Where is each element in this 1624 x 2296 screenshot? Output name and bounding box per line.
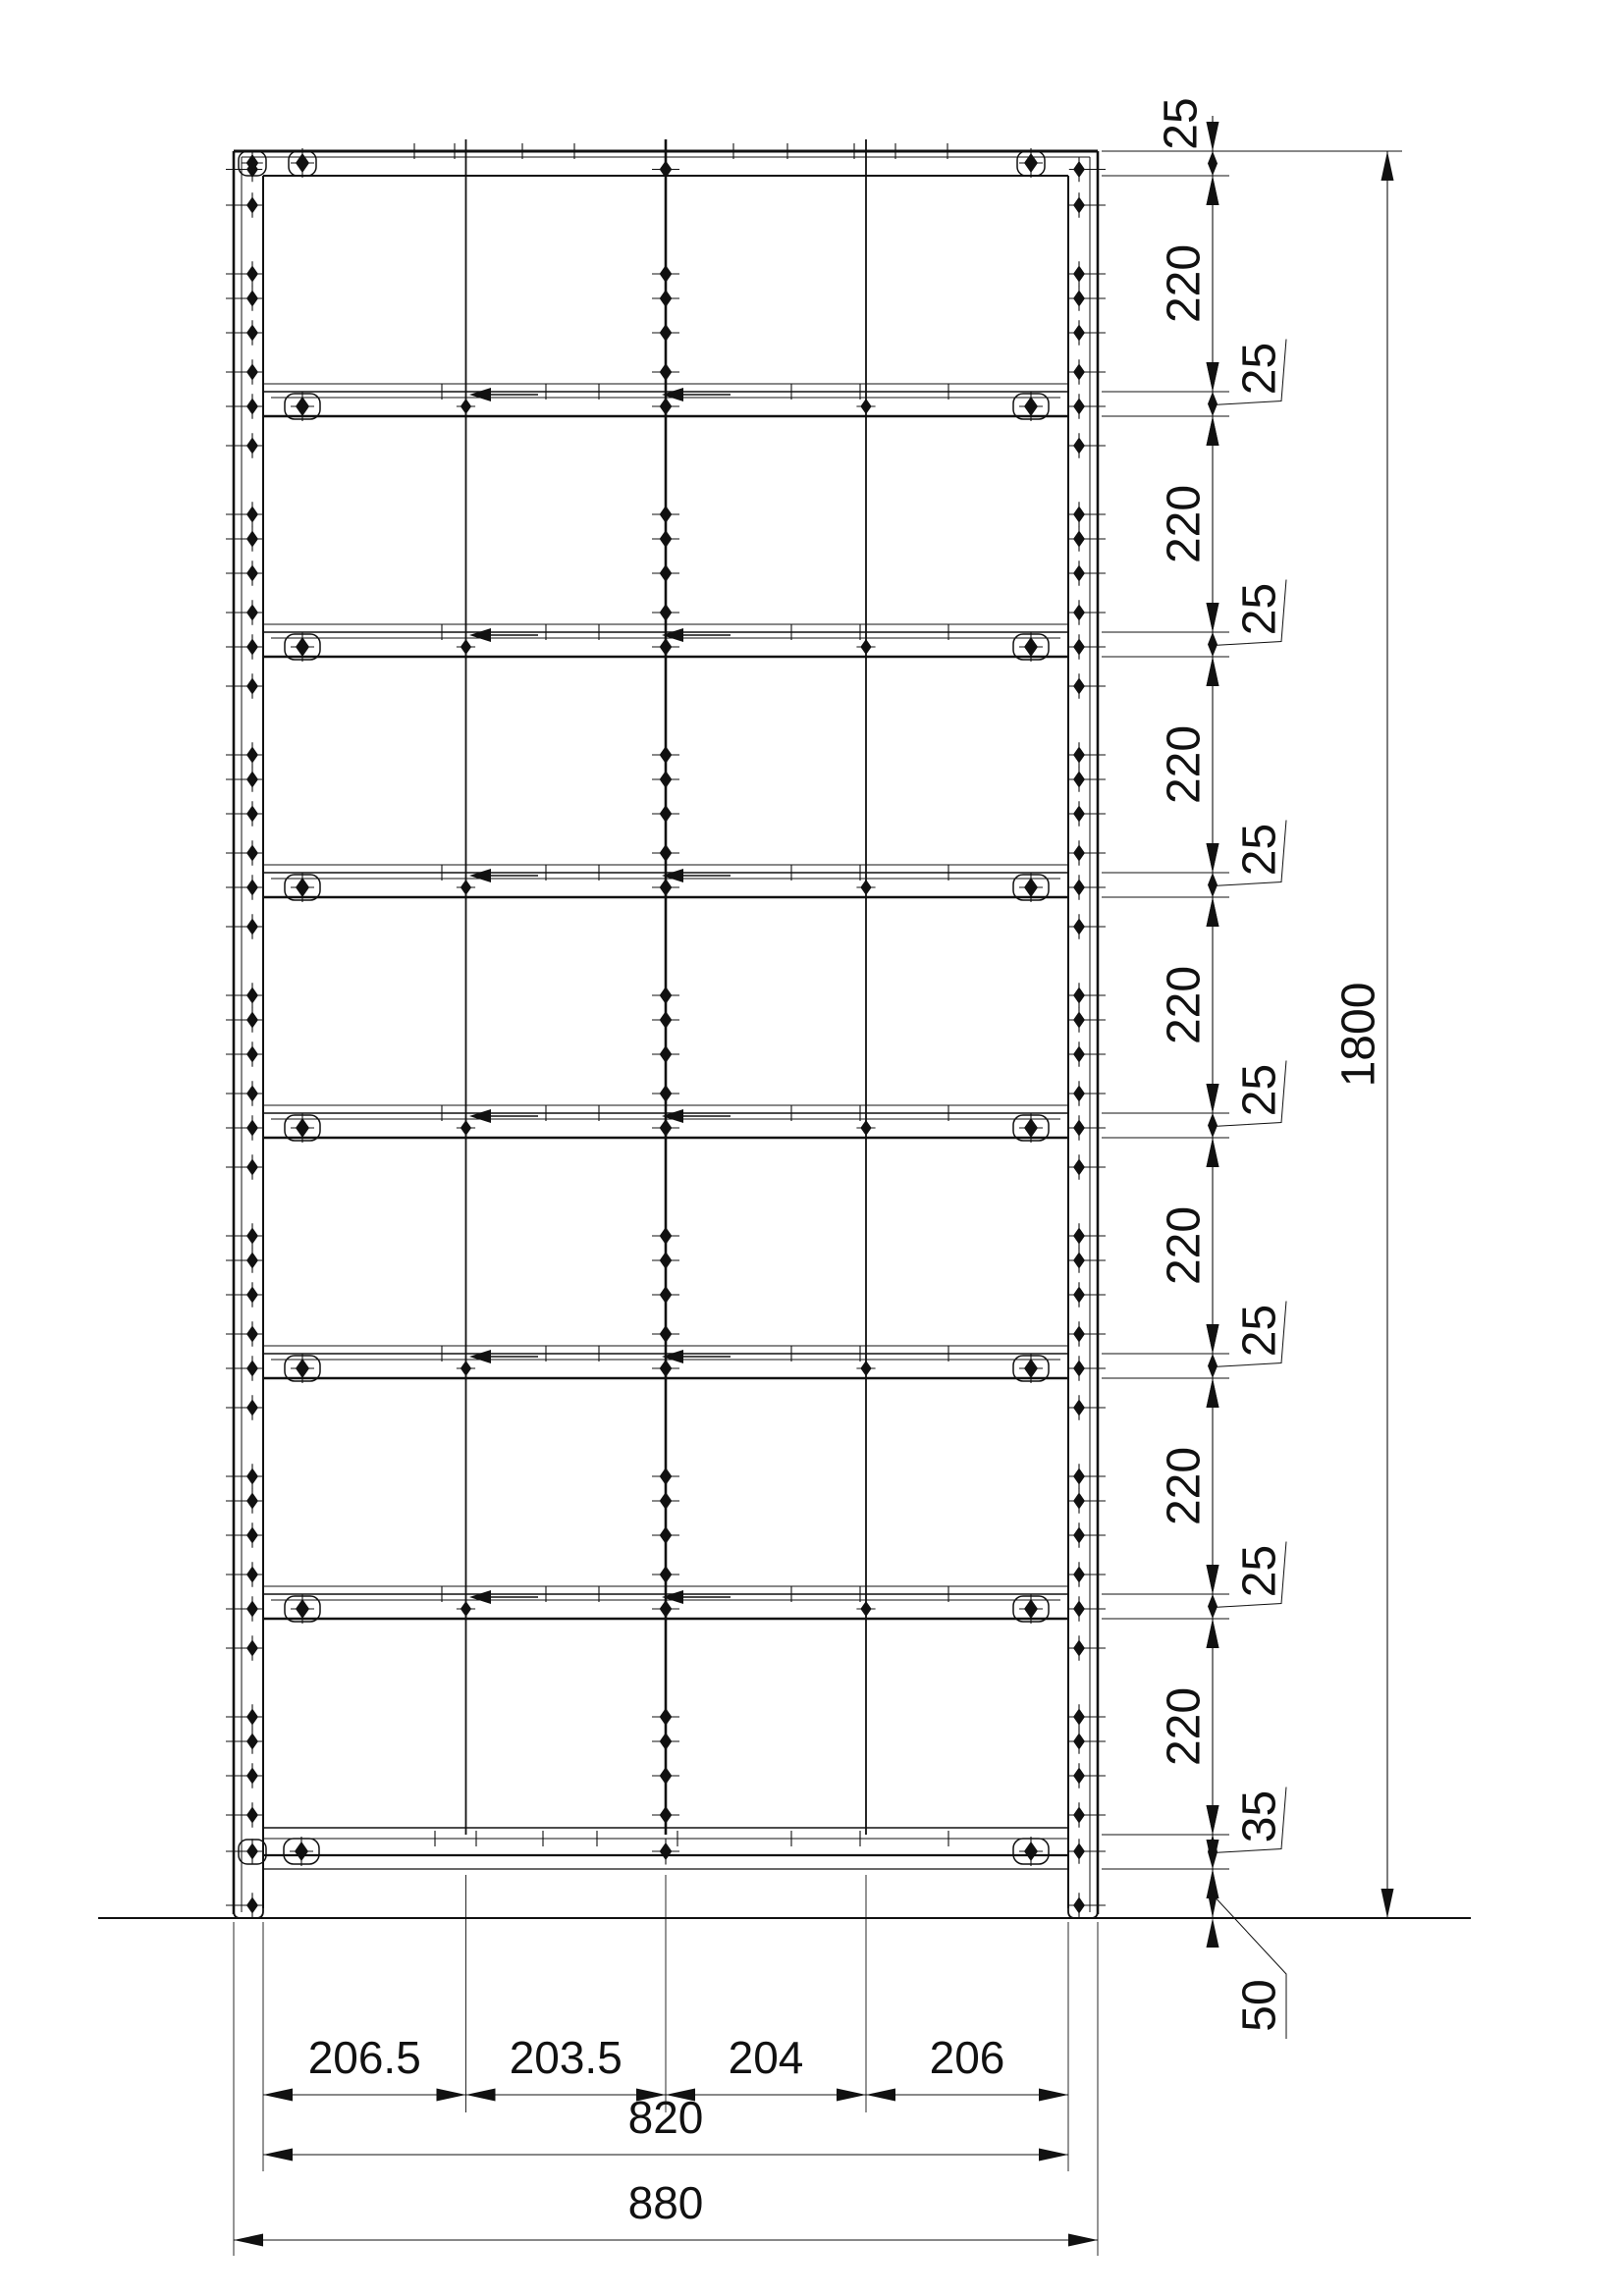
dim-label-shelf-thickness: 25 [1234,1064,1286,1116]
dim-label-shelf-thickness: 25 [1234,583,1286,635]
dim-arrow-icon [1207,1619,1219,1648]
dim-arrow-icon [1207,897,1219,927]
dim-arrow-icon [1039,2149,1068,2162]
dim-label-outer-width: 880 [628,2177,704,2228]
dim-label-inner-width: 820 [628,2092,704,2143]
dim-label-column-width: 206.5 [308,2032,421,2083]
dim-label-shelf-thickness: 35 [1234,1790,1286,1842]
dim-label-bay-height: 220 [1159,966,1211,1044]
dim-label-foot-height: 50 [1234,1979,1286,2031]
dim-arrow-icon [1207,603,1219,632]
dim-label-shelf-thickness: 25 [1234,1545,1286,1597]
left-foot [234,1879,263,1918]
dim-label-bay-height: 220 [1159,1687,1211,1766]
shelf-connector-icon [469,628,491,642]
shelf-connector-icon [469,869,491,882]
dim-arrow-icon [263,2089,293,2102]
shelf-connector-icon [469,1109,491,1123]
dim-arrow-icon [1039,2089,1068,2102]
dim-arrow-icon [1207,362,1219,392]
shelf-connector-icon [469,1590,491,1604]
dim-arrow-icon [234,2234,263,2247]
dim-arrow-icon [1207,1805,1219,1835]
right-foot [1068,1879,1098,1918]
drawing-page: 2522025220252202522025220252202522035501… [0,0,1624,2296]
dim-arrow-icon [1207,1324,1219,1354]
dim-arrow-icon [1207,1138,1219,1167]
dim-arrow-icon [1207,657,1219,686]
dim-label-bay-height: 220 [1159,1206,1211,1285]
dim-gap-fill [1208,1113,1218,1138]
dim-arrow-icon [1207,1840,1219,1869]
dim-arrow-icon [837,2089,866,2102]
dim-label-top-thickness: 25 [1156,97,1208,149]
dim-label-bay-height: 220 [1159,725,1211,804]
shelving-unit-technical-drawing: 2522025220252202522025220252202522035501… [0,0,1624,2296]
dim-gap-fill [1208,1594,1218,1619]
dim-arrow-icon [1381,151,1394,181]
dim-arrow-icon [1207,1084,1219,1113]
dim-label-bay-height: 220 [1159,1447,1211,1525]
dim-arrow-icon [1381,1889,1394,1918]
dim-gap-fill [1208,632,1218,657]
dim-gap-fill [1208,151,1218,176]
dim-gap-fill [1208,1354,1218,1378]
dim-arrow-icon [1207,1378,1219,1408]
dim-arrow-icon [1207,1565,1219,1594]
dim-arrow-icon [1207,176,1219,205]
dim-label-bay-height: 220 [1159,244,1211,323]
dim-label-shelf-thickness: 25 [1234,343,1286,395]
dim-gap-fill [1208,392,1218,416]
dim-arrow-icon [437,2089,466,2102]
dim-arrow-icon [866,2089,895,2102]
dim-arrow-icon [1207,122,1219,151]
dim-gap-fill [1208,1869,1218,1918]
shelf-connector-icon [469,1350,491,1363]
dim-label-column-width: 203.5 [510,2032,623,2083]
dim-arrow-icon [263,2149,293,2162]
dim-label-shelf-thickness: 25 [1234,1305,1286,1357]
dim-arrow-icon [1207,1918,1219,1948]
dim-label-shelf-thickness: 25 [1234,824,1286,876]
shelf-connector-icon [469,388,491,401]
dim-arrow-icon [1207,843,1219,873]
dim-arrow-icon [1207,416,1219,446]
dim-label-overall-height: 1800 [1333,983,1385,1088]
dim-label-column-width: 206 [930,2032,1005,2083]
dim-gap-fill [1208,873,1218,897]
dim-arrow-icon [1068,2234,1098,2247]
dim-label-column-width: 204 [729,2032,804,2083]
dim-arrow-icon [466,2089,496,2102]
dim-label-bay-height: 220 [1159,485,1211,563]
